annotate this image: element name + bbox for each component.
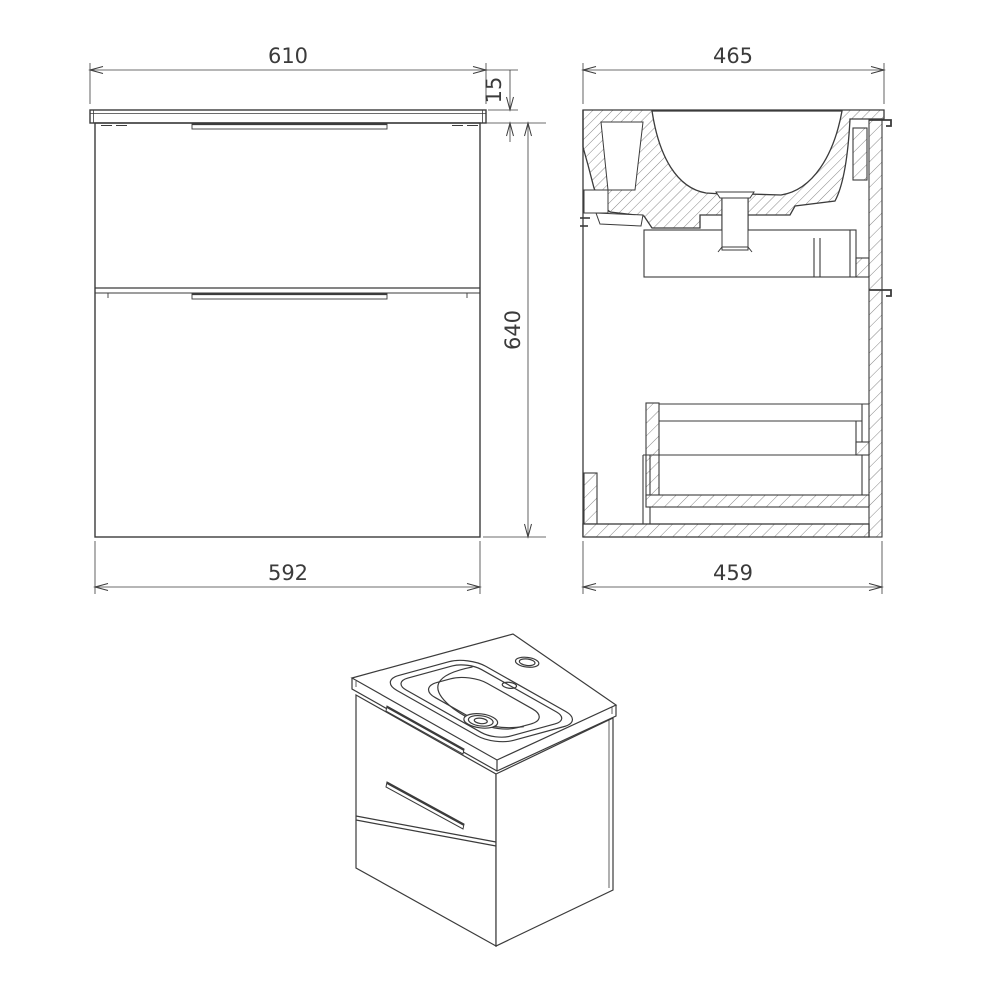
dim-countertop-depth: 465 <box>583 44 884 104</box>
front-top-drawer-handle <box>101 123 478 129</box>
technical-drawing-page: 610 15 640 592 <box>0 0 1000 1000</box>
front-bottom-drawer-handle <box>95 288 480 299</box>
vanity-technical-drawing: 610 15 640 592 <box>0 0 1000 1000</box>
section-mounting-rail <box>853 128 867 180</box>
front-elevation-view: 610 15 640 592 <box>90 44 546 594</box>
dim-cabinet-width: 592 <box>95 541 480 594</box>
section-back-panel <box>869 119 882 537</box>
dim-label-465: 465 <box>713 44 753 68</box>
dim-label-15: 15 <box>482 77 506 104</box>
dim-label-459: 459 <box>713 561 753 585</box>
section-top-drawer-box <box>644 230 869 277</box>
dim-label-610: 610 <box>268 44 308 68</box>
dim-countertop-width: 610 <box>90 44 486 104</box>
dim-cabinet-depth: 459 <box>583 541 882 594</box>
front-countertop <box>90 110 486 123</box>
dim-countertop-thickness: 15 <box>482 70 546 142</box>
section-lower-drawer <box>643 403 869 524</box>
dim-label-592: 592 <box>268 561 308 585</box>
section-bottom-panel <box>583 524 869 537</box>
dim-cabinet-height: 640 <box>483 123 546 537</box>
dim-label-640: 640 <box>501 310 525 350</box>
isometric-view <box>352 634 625 946</box>
section-drain-tube <box>716 192 754 252</box>
section-front-bottom-strip <box>584 473 597 524</box>
front-cabinet-body <box>95 123 480 537</box>
side-section-view: 465 459 <box>580 44 891 594</box>
